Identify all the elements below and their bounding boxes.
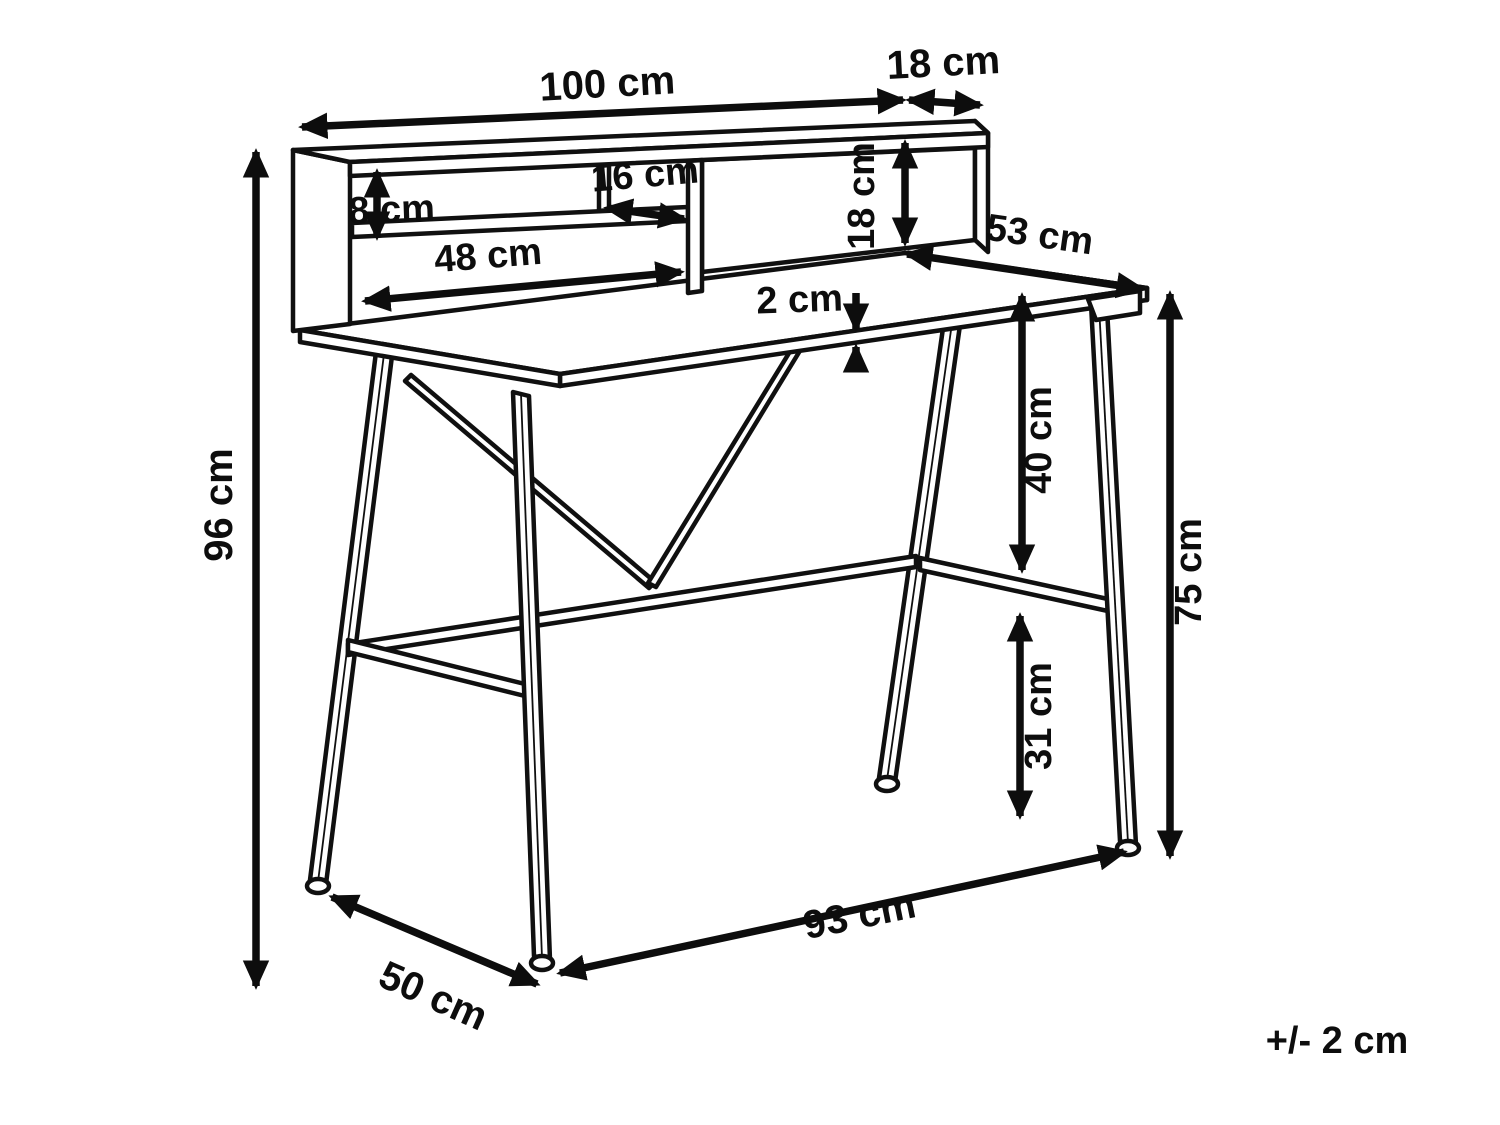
hutch-back-panel [702,148,975,272]
label-tolerance: +/- 2 cm [1266,1020,1409,1062]
front-left-foot [531,956,553,970]
label-hutch-opening-height: 18 cm [841,142,883,250]
arrow-hutch-depth [909,100,980,105]
label-desktop-to-stretcher: 40 cm [1018,386,1060,494]
front-right-leg-line [1099,306,1128,843]
label-shelf-gap: 8 cm [348,188,436,233]
label-desktop-depth: 53 cm [983,207,1096,264]
rear-right-leg-line [887,274,959,780]
arrow-base-depth [332,897,537,984]
label-base-depth: 50 cm [373,953,495,1039]
label-desktop-height: 75 cm [1168,518,1210,626]
rear-left-leg-line [318,354,384,882]
label-total-height: 96 cm [197,448,241,561]
left-stretcher [348,640,533,698]
rear-left-foot [307,879,329,893]
label-hutch-width: 100 cm [538,58,676,110]
label-cubby-width: 16 cm [589,149,700,200]
label-base-width: 93 cm [799,882,919,948]
diagram-canvas: 100 cm 18 cm 96 cm 8 cm 16 cm 18 cm 48 c… [0,0,1500,1125]
label-stretcher-to-floor: 31 cm [1018,662,1060,770]
hutch-left-panel [293,150,350,331]
label-desktop-thickness: 2 cm [756,278,844,323]
label-hutch-depth: 18 cm [886,38,1002,88]
rear-right-foot [876,777,898,791]
desk-dimension-diagram: 100 cm 18 cm 96 cm 8 cm 16 cm 18 cm 48 c… [0,0,1500,1125]
label-shelf-width: 48 cm [433,231,544,281]
